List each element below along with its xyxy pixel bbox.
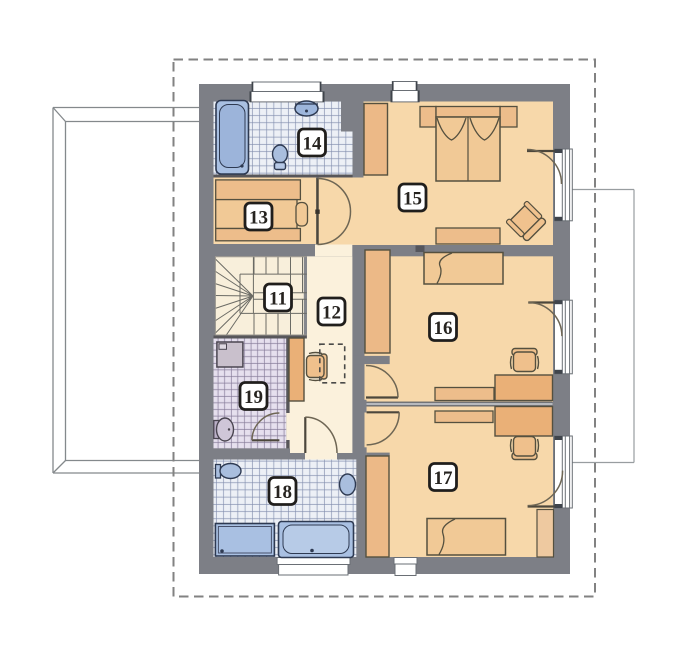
svg-text:12: 12 xyxy=(322,303,341,324)
svg-text:14: 14 xyxy=(303,134,323,155)
svg-text:18: 18 xyxy=(273,482,292,503)
svg-text:19: 19 xyxy=(244,387,263,408)
svg-text:15: 15 xyxy=(403,189,422,210)
svg-text:11: 11 xyxy=(269,289,287,310)
svg-text:16: 16 xyxy=(434,318,453,339)
svg-text:17: 17 xyxy=(434,468,454,489)
svg-text:13: 13 xyxy=(249,208,268,229)
